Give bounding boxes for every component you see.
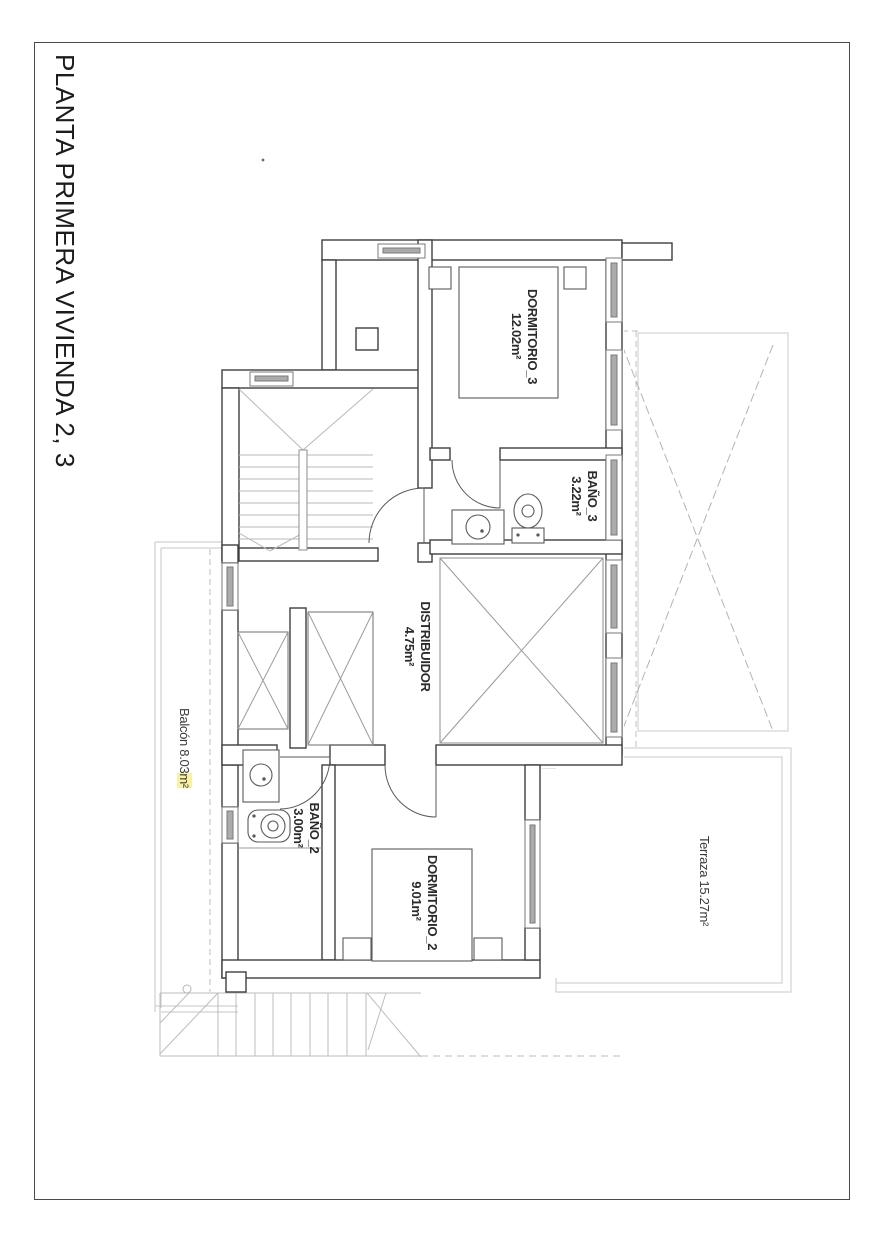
room-name: DORMITORIO_3 [524, 289, 540, 383]
exterior-stairs [160, 985, 622, 1057]
wall-bottom [222, 960, 540, 978]
wall-low-top-c [436, 745, 622, 765]
window [606, 350, 622, 430]
wall-left-low-b [222, 843, 238, 978]
nightstand [429, 267, 451, 289]
room-area: 15.27m² [697, 880, 712, 926]
wall-low-top-b [330, 745, 385, 765]
wall-left-upper [322, 260, 336, 370]
window [525, 820, 540, 928]
wall-bath3-partition-a [430, 448, 450, 460]
room-name: DISTRIBUIDOR [417, 584, 433, 709]
window [606, 658, 622, 737]
room-area: 9.01m² [408, 855, 424, 947]
nightstand [474, 938, 502, 960]
wall-left-mid-a [222, 545, 238, 563]
room-area-unit-highlighted: m² [177, 773, 192, 788]
wall-dorm2-right-b [525, 928, 540, 960]
wall-bath3-partition-b [500, 448, 622, 460]
pillar [226, 972, 246, 992]
toilet [512, 494, 544, 543]
wall-pier [356, 328, 378, 350]
sink [452, 510, 504, 544]
nightstand [343, 938, 371, 960]
room-name: DORMITORIO_2 [424, 855, 440, 947]
room-label-dormitorio2: DORMITORIO_2 9.01m² [408, 855, 440, 947]
room-area-value: 8.03 [177, 749, 192, 773]
room-label-balcon: Balcón 8.03m² [176, 693, 192, 803]
pergola-outline [622, 331, 788, 750]
floor-plan-drawing [0, 0, 878, 1241]
room-area: 4.75m² [401, 584, 417, 709]
room-name: Balcón [177, 708, 192, 746]
wall-left-low-a [222, 765, 238, 807]
window [222, 563, 238, 610]
window [606, 560, 622, 633]
room-label-dormitorio3: DORMITORIO_3 12.02m² [508, 289, 540, 383]
room-label-bano3: BAÑO_3 3.22m² [568, 456, 600, 536]
vent-window [250, 372, 293, 386]
room-label-bano2: BAÑO_2 3.00m² [290, 799, 322, 857]
nightstand [564, 267, 586, 289]
room-label-distribuidor: DISTRIBUIDOR 4.75m² [401, 584, 433, 709]
plot-mark [262, 159, 265, 162]
window [222, 807, 238, 843]
room-name: BAÑO_3 [584, 456, 600, 536]
sink [243, 750, 279, 802]
room-name: BAÑO_2 [306, 799, 322, 857]
plan-sheet: PLANTA PRIMERA VIVIENDA 2, 3 DORMITORIO_… [0, 0, 878, 1241]
wall-top [322, 240, 622, 260]
room-name: Terraza [697, 836, 712, 877]
wall-left-mid-b [222, 610, 238, 765]
window [606, 258, 622, 322]
window [606, 455, 622, 540]
toilet [248, 810, 290, 842]
wall-dorm2-right-a [525, 765, 540, 820]
wall-stair-left [222, 388, 239, 560]
vent-window [378, 244, 425, 258]
page-title: PLANTA PRIMERA VIVIENDA 2, 3 [48, 54, 80, 394]
wall-stair-bottom [239, 548, 378, 561]
room-area: 3.00m² [290, 799, 306, 857]
wall-bath2-partition [322, 765, 335, 960]
wall-wardrobe-divider [290, 608, 306, 748]
terrace-outline [556, 748, 791, 992]
room-area: 12.02m² [508, 289, 524, 383]
stair-rail [299, 450, 307, 550]
room-area: 3.22m² [568, 456, 584, 536]
wall-top-right-stub [622, 243, 672, 260]
room-label-terraza: Terraza 15.27m² [696, 831, 712, 931]
